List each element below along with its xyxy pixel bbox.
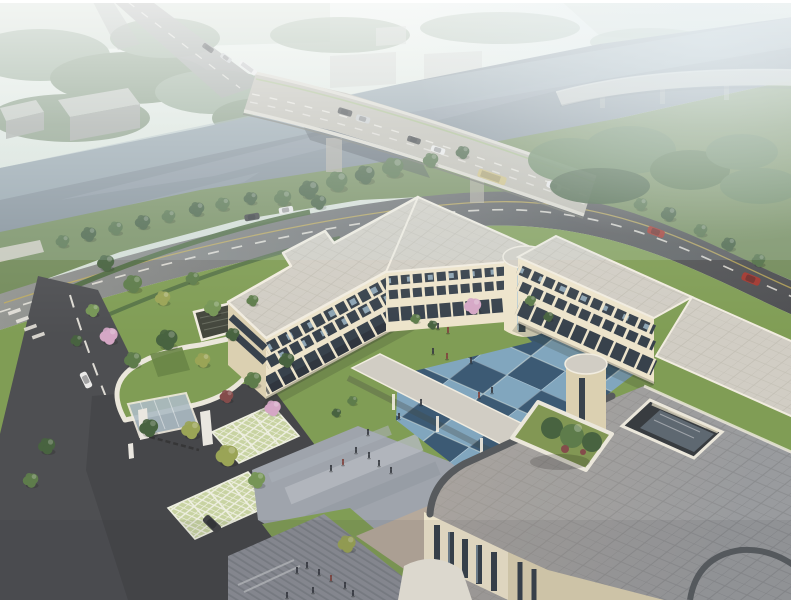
aerial-rendering	[0, 0, 800, 600]
rendering-canvas	[0, 0, 800, 600]
frame-right	[791, 0, 800, 600]
frame-top	[0, 0, 800, 3]
bottom-shade	[0, 520, 800, 600]
fog-northeast	[300, 0, 800, 340]
